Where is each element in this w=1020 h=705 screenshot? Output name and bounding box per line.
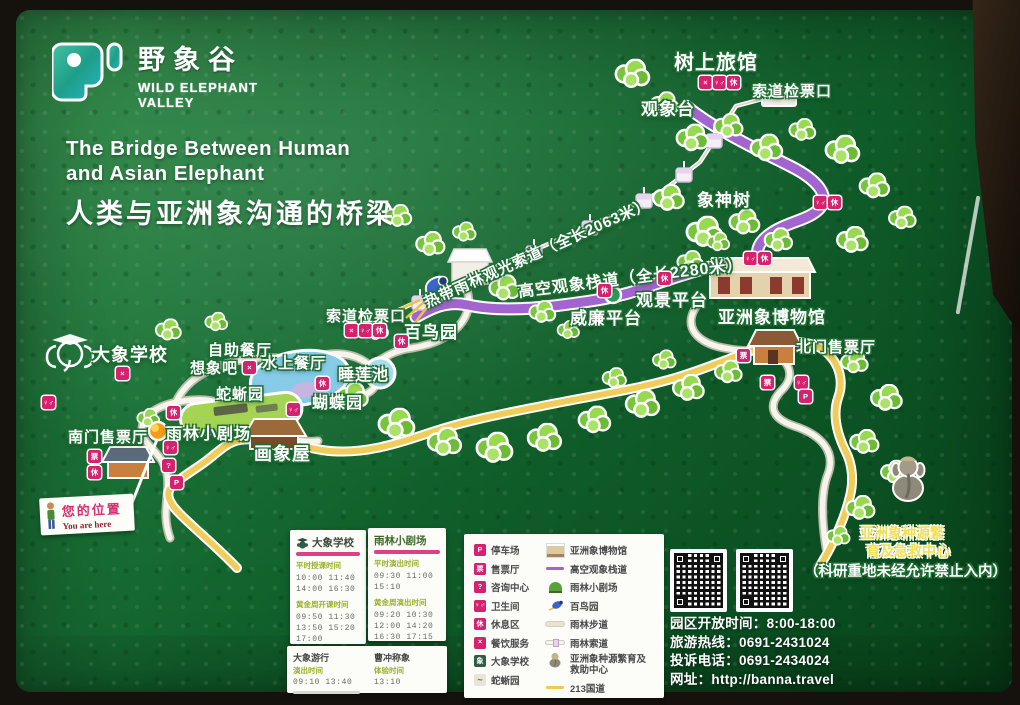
school-time: 17:00 (296, 634, 360, 645)
observation-deck-label: 观象台 (641, 95, 695, 120)
school-card-subtitle-bar (296, 552, 360, 556)
ticket-icon: 票 (88, 450, 101, 463)
legend-item-ticket: 票售票厅 (474, 562, 537, 576)
rest-area-icon: 休 (727, 76, 740, 89)
info-icon: ? (474, 581, 486, 593)
toilet-icon: ♀♂ (359, 324, 372, 337)
lotus-pond-label: 睡莲池 (338, 361, 389, 385)
school-normal-heading: 平时授课时间 (296, 560, 360, 571)
logo-en-line2: VALLEY (138, 95, 258, 110)
legend-panel: P停车场 票售票厅 ?咨询中心 ♀♂卫生间 休休息区 ×餐饮服务 象大象学校 ~… (464, 534, 664, 698)
toilet-icon: ♀♂ (474, 600, 486, 612)
you-are-here-box: 您的位置 You are here (39, 494, 135, 536)
snake-icon: ~ (474, 674, 486, 686)
school-goldenweek-heading: 黄金周开课时间 (296, 599, 360, 610)
dining-icon: × (345, 324, 358, 337)
museum-label: 亚洲象博物馆 (718, 303, 826, 328)
sign-photo: 野象谷 WILD ELEPHANT VALLEY The Bridge Betw… (0, 0, 1020, 705)
rest-area-icon: 休 (474, 618, 486, 630)
north-ticket-office-label: 北门售票厅 (796, 336, 876, 357)
legend-item-school: 象大象学校 (474, 654, 537, 668)
south-ticket-building (102, 447, 154, 478)
elephant-logo-mark (52, 38, 124, 104)
qr-pattern (740, 553, 789, 608)
rest-area-icon: 休 (395, 335, 408, 348)
theater-time: 09:20 10:30 (374, 610, 440, 621)
reptile-garden-label: 蛇蜥园 (216, 383, 264, 404)
legend-label: 大象学校 (491, 654, 529, 668)
trail-line-icon (545, 618, 565, 630)
title-en-line2: and Asian Elephant (66, 161, 396, 186)
rest-area-icon: 休 (373, 324, 386, 337)
toilet-icon: ♀♂ (164, 441, 177, 454)
hotline: 旅游热线：0691-2431024 (670, 634, 836, 653)
parking-icon: P (799, 390, 812, 403)
legend-label: 高空观象栈道 (570, 562, 627, 576)
complaint-phone: 投诉电话：0691-2434024 (670, 652, 836, 671)
elephant-god-tree-label: 象神树 (697, 186, 751, 211)
breeding-center-label-line1: 亚洲象种源繁 (860, 523, 944, 543)
tree-hotel-label: 树上旅馆 (674, 46, 758, 75)
you-are-here-cn: 您的位置 (61, 498, 130, 521)
theater-goldenweek-heading: 黄金周演出时间 (374, 597, 440, 608)
cableway-gate-north-label: 索道检票口 (752, 80, 832, 101)
legend-item-birds: 百鸟园 (545, 599, 654, 613)
rest-area-icon: 休 (167, 406, 180, 419)
theater-time: 09:30 11:00 (374, 571, 440, 582)
legend-item-reptile: ~蛇蜥园 (474, 673, 537, 687)
legend-label: 亚洲象博物馆 (570, 543, 627, 557)
qr-pattern (674, 553, 723, 608)
painting-house-label: 画象屋 (254, 440, 311, 466)
legend-label: 售票厅 (491, 562, 520, 576)
legend-label: 停车场 (491, 543, 520, 557)
elephant-statue-icon (545, 654, 565, 666)
toilet-icon: ♀♂ (814, 196, 827, 209)
legend-item-trail: 雨林步道 (545, 617, 654, 631)
legend-item-highway: 213国道 (545, 681, 654, 695)
dining-icon: × (116, 367, 129, 380)
you-are-here-en: You are here (62, 518, 130, 532)
legend-label: 卫生间 (491, 599, 520, 613)
toilet-icon: ♀♂ (713, 76, 726, 89)
north-ticket-building (748, 330, 802, 364)
imagine-bar-label: 想象吧 (190, 357, 238, 378)
butterfly-garden-label: 蝴蝶园 (312, 389, 363, 413)
school-time: 13:50 15:20 (296, 623, 360, 634)
title-block: The Bridge Between Human and Asian Eleph… (66, 136, 396, 231)
school-card-title: 大象学校 (312, 535, 354, 550)
cableway-gate-south-label: 索道检票口 (326, 305, 406, 326)
theater-time: 15:10 (374, 582, 440, 593)
parking-icon: P (474, 544, 486, 556)
toilet-icon: ♀♂ (42, 396, 55, 409)
legend-item-toilet: ♀♂卫生间 (474, 599, 537, 613)
skywalk-line-icon (545, 563, 565, 575)
rest-area-icon: 休 (828, 196, 841, 209)
qr-code-1 (670, 549, 727, 612)
legend-label: 雨林小剧场 (570, 580, 618, 594)
legend-label: 亚洲象种源繁育及救助中心 (570, 654, 654, 676)
info-icon: ? (162, 459, 175, 472)
schedule-card-extras: 大象游行 演出时间 09:10 13:40 曹冲称象 体验时间 13:10 (287, 646, 447, 693)
theater-time: 16:30 17:15 (374, 632, 440, 643)
parade-time: 09:10 13:40 (293, 677, 360, 688)
schedule-card-elephant-school: 大象学校 平时授课时间 10:00 11:40 14:00 16:30 黄金周开… (290, 530, 366, 644)
legend-item-skywalk: 高空观象栈道 (545, 562, 654, 576)
legend-item-dining: ×餐饮服务 (474, 636, 537, 650)
park-info-block: 园区开放时间：8:00-18:00 旅游热线：0691-2431024 投诉电话… (670, 615, 836, 689)
rest-area-icon: 休 (658, 272, 671, 285)
dining-icon: × (474, 637, 486, 649)
elephant-school-icon (47, 334, 93, 371)
elephant-school-table-icon (296, 537, 309, 549)
ticket-icon: 票 (474, 563, 486, 575)
weigh-time: 13:10 (374, 677, 441, 688)
legend-item-ropeway: 雨林索道 (545, 636, 654, 650)
legend-item-breeding-center: 亚洲象种源繁育及救助中心 (545, 654, 654, 676)
website: 网址：http://banna.travel (670, 671, 836, 690)
breeding-center-label-line2: 育及急救中心 (866, 541, 950, 561)
school-time: 14:00 16:30 (296, 584, 360, 595)
legend-item-museum: 亚洲象博物馆 (545, 543, 654, 557)
restricted-area-notice: （科研重地未经允许禁止入内） (804, 560, 1007, 581)
elephant-school-icon: 象 (474, 655, 486, 667)
legend-item-parking: P停车场 (474, 543, 537, 557)
legend-label: 雨林索道 (570, 636, 608, 650)
toilet-icon: ♀♂ (795, 376, 808, 389)
weigh-title: 曹冲称象 (374, 651, 441, 664)
scenic-platform-label: 观景平台 (636, 286, 708, 311)
title-en-line1: The Bridge Between Human (66, 136, 396, 161)
rest-area-icon: 休 (316, 377, 329, 390)
legend-label: 蛇蜥园 (491, 673, 520, 687)
legend-label: 百鸟园 (570, 599, 599, 613)
schedule-card-theater: 雨林小剧场 平时演出时间 09:30 11:00 15:10 黄金周演出时间 0… (368, 528, 446, 641)
water-restaurant-label: 水上餐厅 (262, 352, 326, 373)
museum-icon (545, 544, 565, 556)
legend-item-rest: 休休息区 (474, 617, 537, 631)
logo-cn: 野象谷 (138, 38, 258, 77)
rest-area-icon: 休 (88, 466, 101, 479)
legend-label: 咨询中心 (491, 580, 529, 594)
dining-icon: × (243, 361, 256, 374)
elephant-statue (892, 457, 925, 502)
ticket-icon: 票 (737, 349, 750, 362)
theater-card-title: 雨林小剧场 (374, 533, 427, 548)
parade-title: 大象游行 (293, 651, 360, 664)
legend-label: 雨林步道 (570, 617, 608, 631)
william-platform-label: 威廉平台 (570, 304, 642, 329)
south-ticket-office-label: 南门售票厅 (68, 426, 148, 447)
legend-item-info: ?咨询中心 (474, 580, 537, 594)
open-hours: 园区开放时间：8:00-18:00 (670, 615, 836, 634)
dining-icon: × (699, 76, 712, 89)
theater-normal-heading: 平时演出时间 (374, 558, 440, 569)
highway-line-icon (545, 682, 565, 694)
logo: 野象谷 WILD ELEPHANT VALLEY (52, 38, 258, 110)
legend-item-theater: 雨林小剧场 (545, 580, 654, 594)
qr-code-2 (736, 549, 793, 612)
logo-en-line1: WILD ELEPHANT (138, 80, 258, 95)
weigh-heading: 体验时间 (374, 665, 441, 676)
ticket-icon: 票 (761, 376, 774, 389)
legend-label: 213国道 (570, 681, 605, 695)
hiker-icon (42, 501, 60, 532)
legend-label: 休息区 (491, 617, 520, 631)
bird-garden-label: 百鸟园 (404, 318, 458, 343)
ropeway-line-icon (545, 637, 565, 649)
theater-icon (545, 581, 565, 593)
bird-icon (545, 600, 565, 612)
legend-label: 餐饮服务 (491, 636, 529, 650)
parade-heading: 演出时间 (293, 665, 360, 676)
elephant-school-label: 大象学校 (92, 341, 168, 367)
rest-area-icon: 休 (758, 252, 771, 265)
toilet-icon: ♀♂ (744, 252, 757, 265)
parade-footnote-strip (293, 691, 360, 694)
theater-card-subtitle-bar (374, 550, 440, 554)
you-are-here-dot (149, 422, 167, 440)
parking-icon: P (170, 476, 183, 489)
toilet-icon: ♀♂ (287, 403, 300, 416)
theater-time: 12:00 14:20 (374, 621, 440, 632)
rest-area-icon: 休 (598, 284, 611, 297)
school-time: 10:00 11:40 (296, 573, 360, 584)
school-time: 09:50 11:30 (296, 612, 360, 623)
title-cn: 人类与亚洲象沟通的桥梁 (66, 192, 396, 231)
rainforest-theater-label: 雨林小剧场 (166, 420, 251, 444)
